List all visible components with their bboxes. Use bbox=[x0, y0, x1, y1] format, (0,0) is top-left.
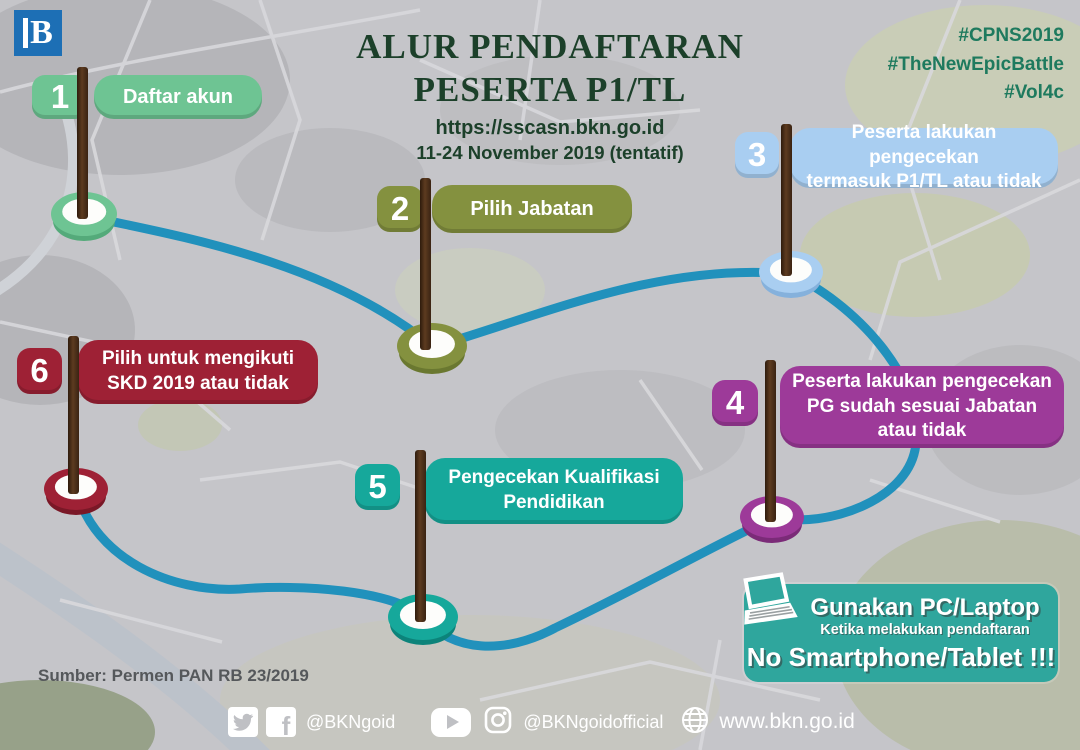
header: ALUR PENDAFTARAN PESERTA P1/TL https://s… bbox=[290, 26, 810, 164]
page-title-line1: ALUR PENDAFTARAN bbox=[290, 26, 810, 69]
infographic-poster: B ALUR PENDAFTARAN PESERTA P1/TL https:/… bbox=[0, 0, 1080, 750]
step-number: 6 bbox=[17, 348, 62, 394]
footer-social-bar: f @BKNgoid @BKNgoidofficial www.bkn.go.i… bbox=[228, 704, 855, 740]
hashtag-thenewepicbattle[interactable]: #TheNewEpicBattle bbox=[888, 51, 1064, 80]
twitter-facebook-handle[interactable]: @BKNgoid bbox=[306, 712, 395, 733]
youtube-icon[interactable] bbox=[431, 708, 471, 737]
signpost-base-hole bbox=[409, 330, 455, 358]
website-url[interactable]: www.bkn.go.id bbox=[719, 710, 854, 734]
signpost-pole bbox=[68, 336, 79, 494]
registration-url[interactable]: https://sscasn.bkn.go.id bbox=[290, 117, 810, 140]
youtube-instagram-handle[interactable]: @BKNgoidofficial bbox=[523, 712, 663, 733]
step-label: Peserta lakukan pengecekan termasuk P1/T… bbox=[790, 128, 1058, 188]
bkn-logo-letter: B bbox=[30, 16, 53, 50]
globe-icon bbox=[679, 704, 711, 741]
signpost-base bbox=[397, 323, 467, 369]
signpost-pole bbox=[420, 178, 431, 350]
signpost-pole bbox=[765, 360, 776, 522]
step-label: Peserta lakukan pengecekan PG sudah sesu… bbox=[780, 366, 1064, 448]
bkn-logo-bar bbox=[23, 18, 28, 48]
notice-line3: No Smartphone/Tablet !!! bbox=[744, 642, 1058, 673]
step-number: 2 bbox=[377, 186, 423, 232]
step-number: 4 bbox=[712, 380, 758, 426]
twitter-icon[interactable] bbox=[228, 707, 258, 737]
registration-dates: 11-24 November 2019 (tentatif) bbox=[290, 142, 810, 164]
step-label: Daftar akun bbox=[94, 75, 262, 119]
device-notice: Gunakan PC/Laptop Ketika melakukan penda… bbox=[744, 584, 1058, 682]
bkn-logo: B bbox=[14, 10, 62, 56]
hashtag-block: #CPNS2019 #TheNewEpicBattle #Vol4c bbox=[888, 22, 1064, 108]
hashtag-cpns2019[interactable]: #CPNS2019 bbox=[888, 22, 1064, 51]
step-label: Pilih Jabatan bbox=[432, 185, 632, 233]
step-number: 5 bbox=[355, 464, 400, 510]
step-label: Pengecekan Kualifikasi Pendidikan bbox=[425, 458, 683, 524]
signpost-pole bbox=[415, 450, 426, 622]
page-title-line2: PESERTA P1/TL bbox=[290, 69, 810, 112]
hashtag-vol4c[interactable]: #Vol4c bbox=[888, 79, 1064, 108]
signpost-pole bbox=[77, 67, 88, 219]
step-label: Pilih untuk mengikuti SKD 2019 atau tida… bbox=[78, 340, 318, 404]
laptop-icon bbox=[736, 572, 800, 632]
instagram-icon[interactable] bbox=[483, 705, 513, 740]
facebook-icon[interactable]: f bbox=[266, 707, 296, 737]
source-note: Sumber: Permen PAN RB 23/2019 bbox=[38, 666, 309, 686]
